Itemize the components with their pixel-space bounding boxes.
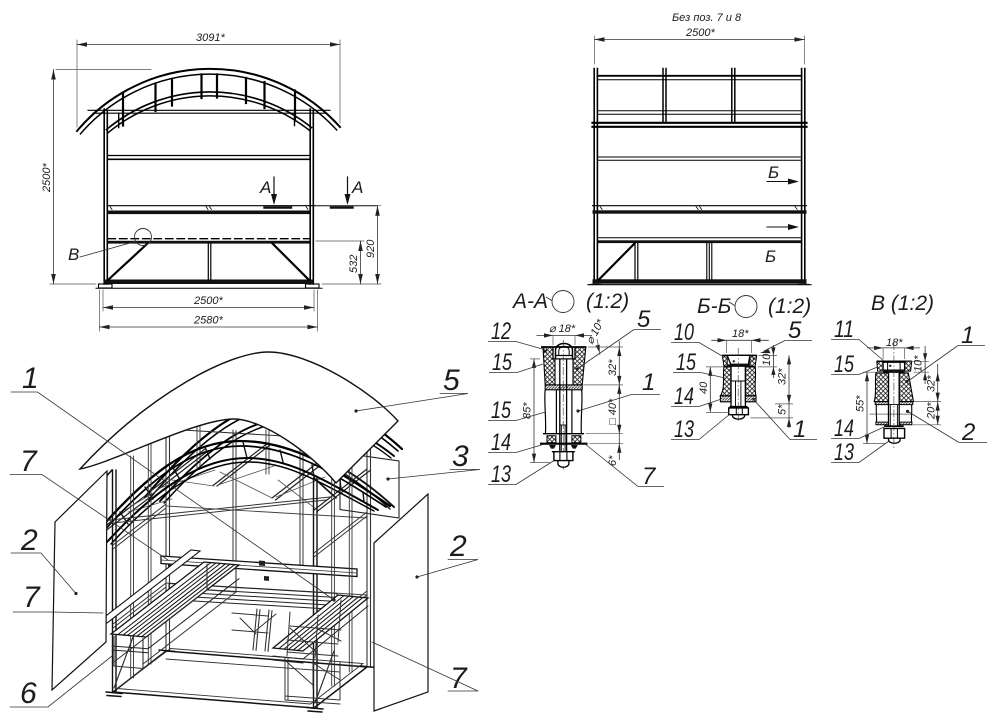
svg-text:1: 1 (22, 362, 39, 395)
svg-text:5*: 5* (777, 404, 789, 415)
svg-text:1: 1 (642, 369, 655, 396)
svg-text:12: 12 (491, 318, 511, 345)
svg-text:(1:2): (1:2) (768, 295, 811, 318)
svg-text:11: 11 (834, 316, 854, 343)
svg-text:2500*: 2500* (685, 27, 715, 39)
svg-text:3: 3 (452, 440, 469, 473)
svg-text:7: 7 (642, 463, 657, 490)
svg-text:10*: 10* (913, 355, 925, 372)
svg-text:7: 7 (23, 581, 41, 614)
svg-text:В: В (68, 245, 79, 264)
svg-text:10: 10 (674, 319, 694, 346)
svg-text:5: 5 (788, 317, 802, 344)
svg-text:40: 40 (698, 381, 710, 394)
svg-text:А-А: А-А (511, 290, 548, 313)
svg-text:18*: 18* (886, 337, 903, 349)
svg-text:14: 14 (834, 415, 854, 442)
svg-text:2: 2 (449, 530, 467, 563)
svg-text:Б: Б (765, 247, 776, 266)
svg-text:(1:2): (1:2) (586, 290, 629, 313)
svg-text:32*: 32* (925, 375, 937, 392)
svg-text:32*: 32* (607, 359, 619, 376)
svg-text:532: 532 (348, 255, 360, 273)
svg-text:920: 920 (365, 239, 377, 258)
svg-text:6*: 6* (607, 455, 619, 466)
svg-text:□ 40*: □ 40* (607, 398, 619, 425)
svg-text:13: 13 (834, 439, 854, 466)
svg-text:2500*: 2500* (41, 163, 53, 193)
svg-text:Без поз. 7 и 8: Без поз. 7 и 8 (672, 12, 742, 24)
svg-text:В (1:2): В (1:2) (871, 292, 934, 315)
svg-text:2500*: 2500* (193, 295, 223, 307)
svg-text:2: 2 (20, 524, 38, 557)
svg-text:А: А (259, 178, 271, 197)
svg-text:7: 7 (20, 445, 38, 478)
svg-text:6: 6 (20, 677, 37, 710)
svg-text:1: 1 (793, 416, 806, 443)
svg-text:2: 2 (961, 419, 975, 446)
svg-text:14: 14 (674, 383, 694, 410)
svg-text:20*: 20* (925, 402, 937, 420)
svg-text:10: 10 (761, 353, 773, 366)
svg-text:А: А (351, 178, 363, 197)
svg-text:Б: Б (768, 163, 779, 182)
svg-text:2580*: 2580* (193, 315, 223, 327)
svg-text:15: 15 (834, 351, 854, 378)
svg-text:13: 13 (491, 461, 511, 488)
svg-text:3091*: 3091* (196, 32, 225, 44)
svg-text:7: 7 (450, 662, 468, 695)
svg-text:5: 5 (443, 364, 460, 397)
svg-text:15: 15 (491, 397, 511, 424)
svg-text:15: 15 (492, 349, 512, 376)
svg-text:5: 5 (637, 306, 651, 333)
svg-text:1: 1 (961, 322, 974, 349)
svg-text:13: 13 (674, 416, 694, 443)
svg-text:14: 14 (491, 429, 511, 456)
svg-text:⌀ 18*: ⌀ 18* (549, 323, 576, 335)
svg-text:⌀ 10*: ⌀ 10* (584, 317, 607, 346)
svg-text:32*: 32* (777, 368, 789, 385)
svg-text:Б-Б: Б-Б (697, 295, 731, 318)
svg-text:18*: 18* (732, 328, 749, 340)
svg-text:15: 15 (676, 349, 696, 376)
svg-text:55*: 55* (855, 395, 867, 412)
svg-text:85*: 85* (522, 402, 534, 419)
